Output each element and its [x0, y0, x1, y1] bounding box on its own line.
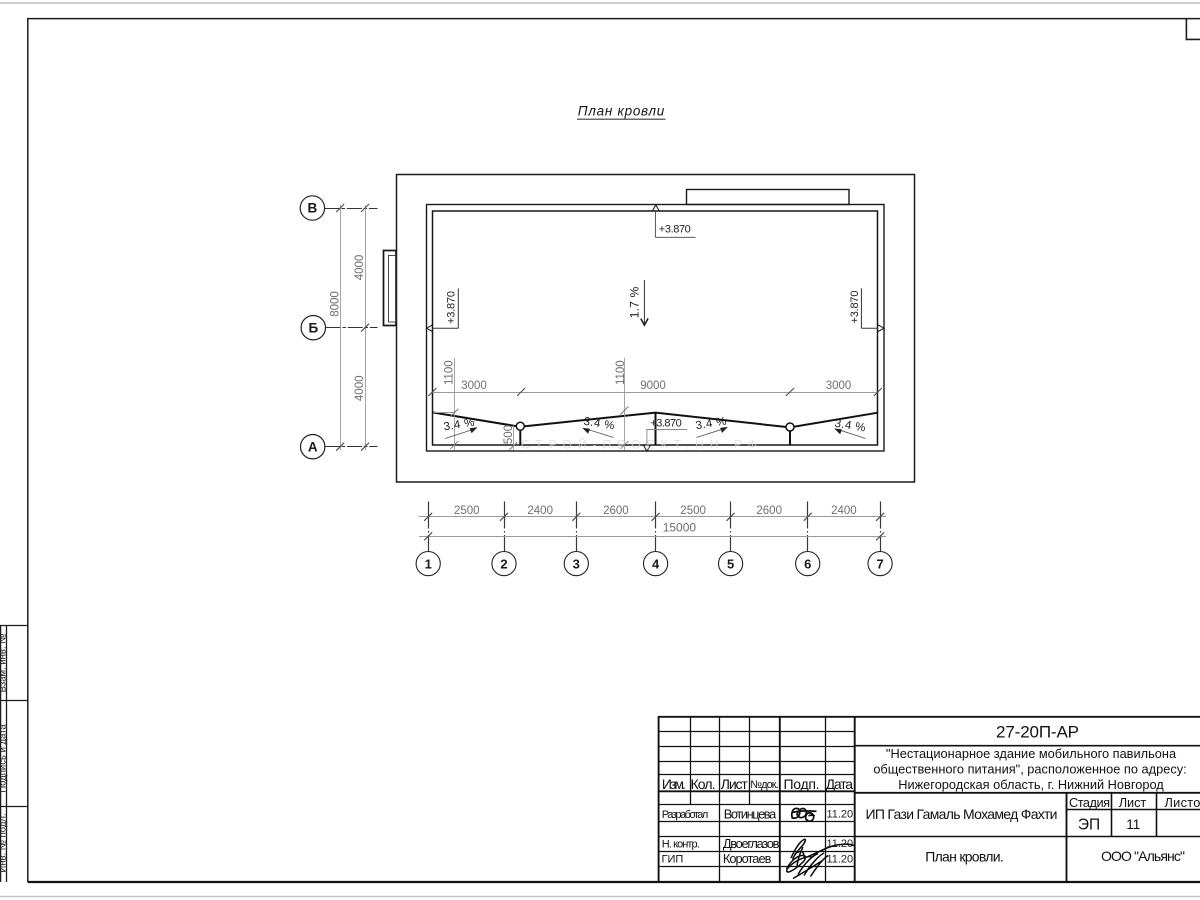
svg-text:2400: 2400 — [831, 505, 857, 517]
svg-text:Вотинцева: Вотинцева — [724, 807, 777, 822]
svg-text:Листов: Листов — [1165, 795, 1200, 810]
svg-text:3: 3 — [573, 556, 580, 571]
svg-text:6: 6 — [804, 556, 811, 571]
svg-text:Двоеглазов: Двоеглазов — [723, 836, 780, 851]
svg-text:27-20П-АР: 27-20П-АР — [996, 723, 1079, 742]
svg-text:9000: 9000 — [640, 380, 666, 392]
svg-text:7: 7 — [876, 556, 883, 571]
svg-text:1100: 1100 — [615, 360, 627, 385]
svg-text:11.20: 11.20 — [826, 853, 853, 865]
svg-text:Подпись и дата: Подпись и дата — [0, 724, 8, 793]
svg-text:1.7 %: 1.7 % — [628, 286, 642, 318]
svg-text:500: 500 — [503, 425, 515, 444]
svg-text:Коротаев: Коротаев — [723, 851, 772, 866]
svg-text:+3.870: +3.870 — [849, 291, 861, 324]
svg-text:2600: 2600 — [756, 505, 782, 517]
svg-text:+3.870: +3.870 — [659, 224, 691, 236]
svg-text:2500: 2500 — [454, 505, 480, 517]
svg-text:+3.870: +3.870 — [650, 418, 682, 430]
svg-text:8000: 8000 — [329, 291, 341, 317]
svg-text:3000: 3000 — [461, 380, 487, 392]
svg-text:ИП Гази Гамаль Мохамед Фахти: ИП Гази Гамаль Мохамед Фахти — [866, 806, 1058, 822]
svg-text:Н. контр.: Н. контр. — [662, 839, 700, 851]
svg-text:2600: 2600 — [603, 505, 629, 517]
svg-text:№док.: №док. — [750, 779, 779, 791]
svg-text:В: В — [308, 201, 318, 216]
svg-text:Разработал: Разработал — [662, 809, 709, 821]
svg-text:План кровли.: План кровли. — [925, 849, 1004, 865]
svg-text:А: А — [308, 439, 318, 454]
svg-text:+3.870: +3.870 — [446, 291, 458, 324]
svg-text:общественного питания", распол: общественного питания", расположенное по… — [873, 762, 1186, 777]
svg-text:ГИП: ГИП — [662, 854, 684, 866]
svg-text:2400: 2400 — [527, 505, 553, 517]
svg-text:"Нестационарное здание мобильн: "Нестационарное здание мобильного павиль… — [886, 746, 1177, 761]
svg-text:15000: 15000 — [663, 521, 697, 535]
svg-text:4000: 4000 — [354, 255, 366, 281]
svg-text:11.20: 11.20 — [826, 809, 853, 821]
svg-text:4000: 4000 — [354, 376, 366, 402]
svg-text:Изм.: Изм. — [662, 776, 686, 792]
svg-text:Кол.: Кол. — [691, 776, 716, 792]
svg-text:2: 2 — [500, 556, 507, 571]
svg-text:Подп.: Подп. — [784, 776, 820, 792]
svg-text:Лист: Лист — [1119, 795, 1147, 810]
svg-text:5: 5 — [727, 556, 734, 571]
svg-text:Взам. инв. №: Взам. инв. № — [0, 634, 8, 693]
svg-text:3000: 3000 — [826, 380, 852, 392]
svg-text:Стадия: Стадия — [1069, 795, 1110, 810]
svg-text:Б: Б — [308, 320, 318, 335]
svg-text:1100: 1100 — [443, 360, 455, 385]
svg-text:11: 11 — [1126, 817, 1140, 832]
svg-text:ООО "Альянс": ООО "Альянс" — [1101, 848, 1185, 864]
svg-text:4: 4 — [652, 556, 660, 571]
svg-text:Дата: Дата — [826, 776, 854, 792]
svg-text:Нижегородская область, г. Нижн: Нижегородская область, г. Нижний Новгоро… — [898, 777, 1164, 792]
svg-text:2500: 2500 — [680, 505, 706, 517]
svg-text:Лист: Лист — [721, 776, 749, 792]
svg-text:Инв. № подл.: Инв. № подл. — [0, 813, 8, 872]
svg-text:План кровли: План кровли — [578, 104, 665, 119]
svg-text:ЭП: ЭП — [1078, 817, 1100, 834]
svg-text:1: 1 — [425, 556, 432, 571]
